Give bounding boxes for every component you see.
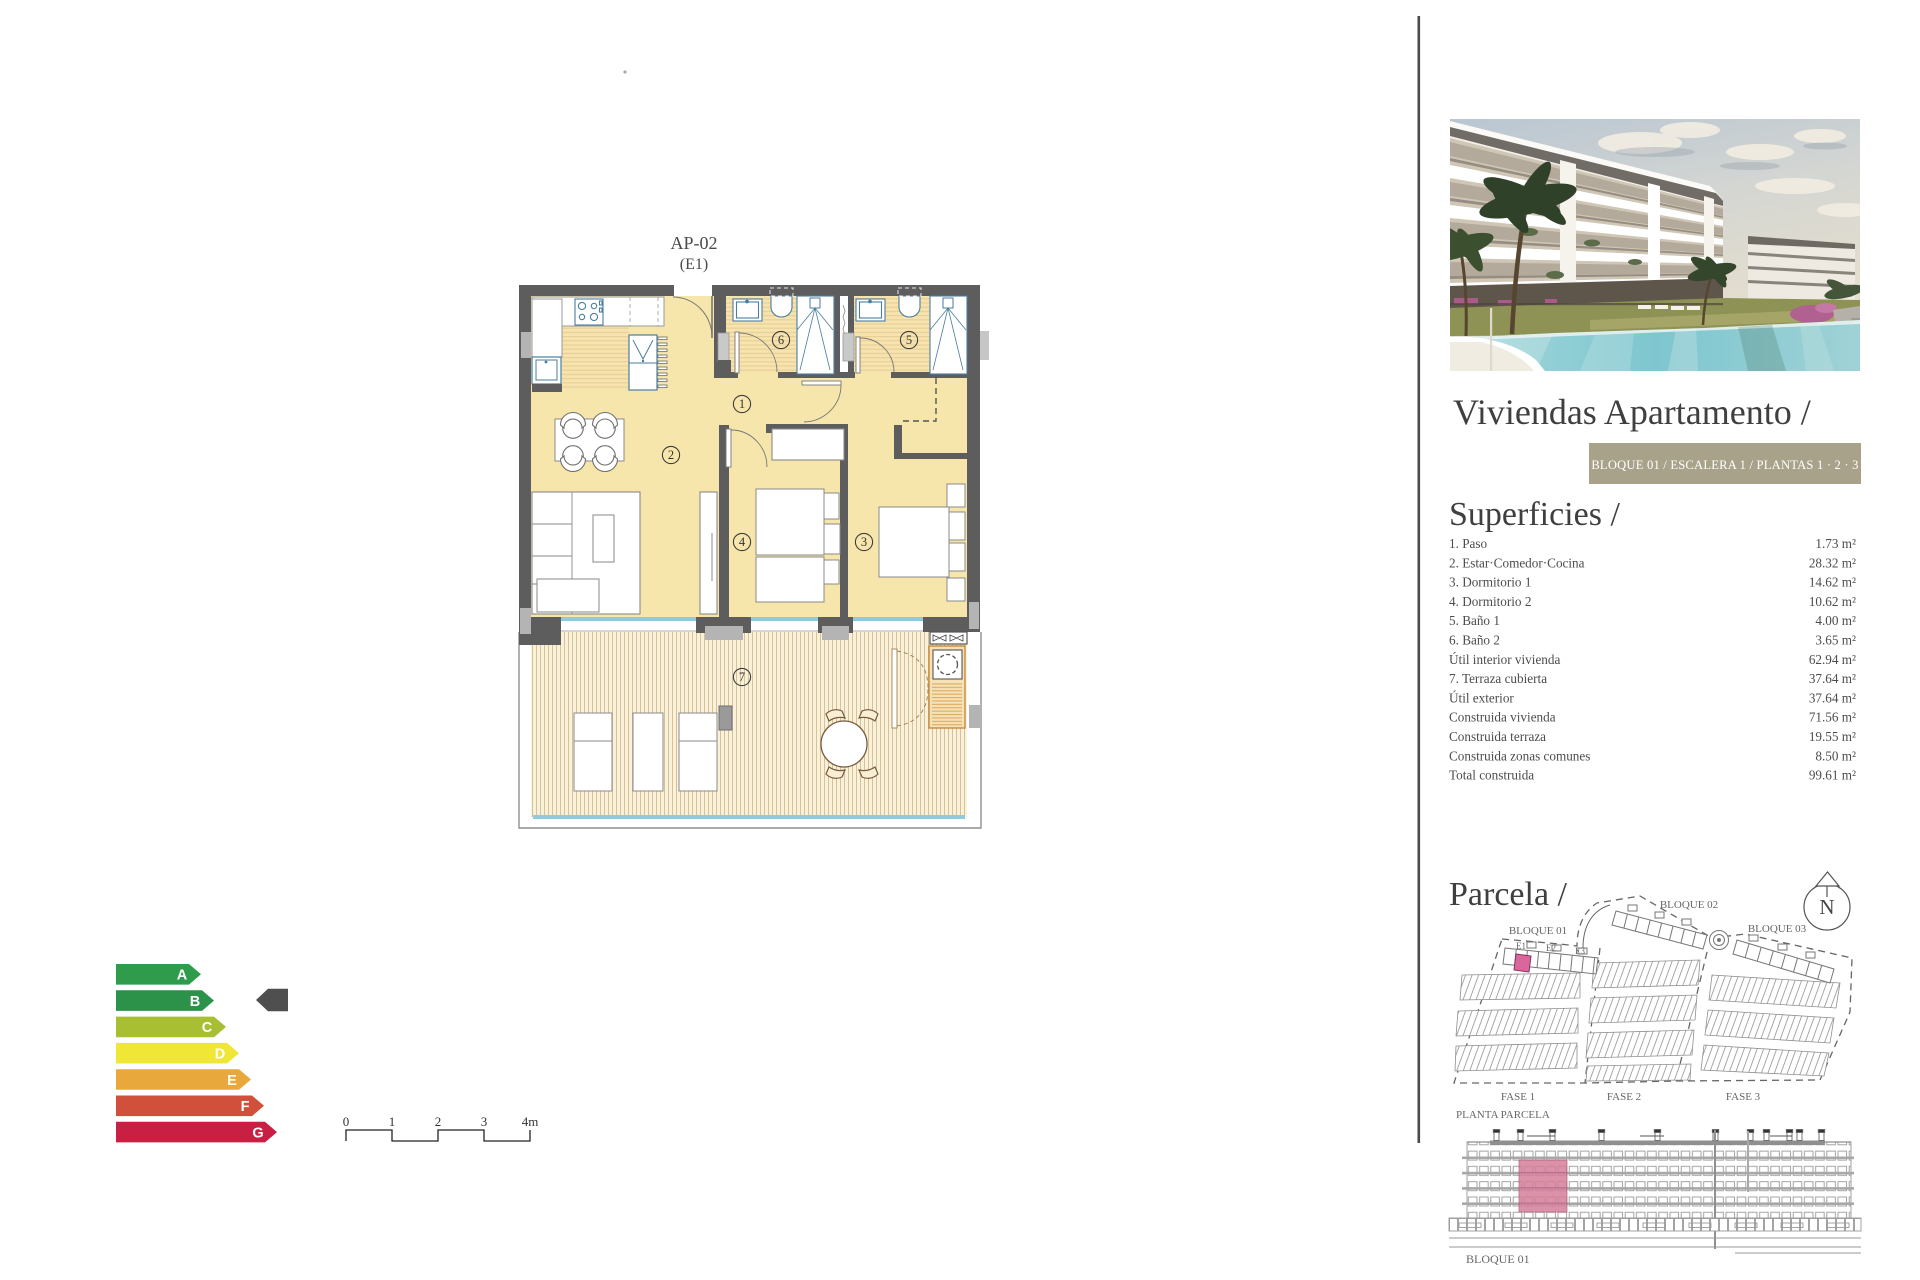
svg-text:E3: E3 [1575, 946, 1585, 956]
svg-text:Construida zonas comunes: Construida zonas comunes [1449, 748, 1590, 763]
svg-text:7. Terraza cubierta: 7. Terraza cubierta [1449, 671, 1547, 686]
svg-text:1: 1 [739, 397, 745, 411]
svg-text:2. Estar·Comedor·Cocina: 2. Estar·Comedor·Cocina [1449, 555, 1585, 570]
svg-text:2: 2 [435, 1114, 442, 1129]
svg-text:Construida vivienda: Construida vivienda [1449, 710, 1556, 725]
svg-text:Parcela /: Parcela / [1449, 876, 1568, 913]
svg-text:6: 6 [778, 333, 784, 347]
svg-text:37.64 m²: 37.64 m² [1809, 690, 1856, 705]
svg-text:Viviendas Apartamento /: Viviendas Apartamento / [1453, 392, 1811, 432]
svg-text:5. Baño 1: 5. Baño 1 [1449, 613, 1500, 628]
svg-text:2: 2 [668, 448, 674, 462]
svg-text:4.00 m²: 4.00 m² [1815, 613, 1856, 628]
svg-text:71.56 m²: 71.56 m² [1809, 710, 1856, 725]
svg-text:5: 5 [906, 333, 912, 347]
svg-text:0: 0 [343, 1114, 350, 1129]
svg-text:B: B [190, 994, 200, 1010]
svg-text:E1: E1 [1516, 941, 1526, 951]
svg-text:1: 1 [389, 1114, 396, 1129]
svg-text:Superficies /: Superficies / [1449, 496, 1620, 533]
svg-text:7: 7 [739, 670, 745, 684]
svg-text:19.55 m²: 19.55 m² [1809, 729, 1856, 744]
svg-text:4. Dormitorio 2: 4. Dormitorio 2 [1449, 594, 1531, 609]
svg-text:4m: 4m [522, 1114, 539, 1129]
svg-text:BLOQUE 01: BLOQUE 01 [1509, 925, 1567, 937]
svg-text:3: 3 [861, 535, 867, 549]
svg-text:Total construida: Total construida [1449, 768, 1534, 783]
svg-text:8.50 m²: 8.50 m² [1815, 748, 1856, 763]
svg-text:FASE 3: FASE 3 [1726, 1091, 1761, 1103]
svg-text:PLANTA PARCELA: PLANTA PARCELA [1456, 1109, 1550, 1121]
svg-text:BLOQUE 01 / ESCALERA 1 / PLANT: BLOQUE 01 / ESCALERA 1 / PLANTAS 1 · 2 ·… [1591, 458, 1858, 472]
svg-text:E: E [227, 1073, 237, 1089]
svg-text:3: 3 [481, 1114, 488, 1129]
svg-text:BLOQUE 03: BLOQUE 03 [1748, 923, 1807, 935]
svg-text:Útil interior vivienda: Útil interior vivienda [1449, 652, 1560, 667]
svg-text:N: N [1819, 895, 1834, 919]
svg-text:A: A [177, 968, 188, 984]
svg-text:4: 4 [739, 535, 746, 549]
svg-text:1.73 m²: 1.73 m² [1815, 536, 1856, 551]
svg-text:10.62 m²: 10.62 m² [1809, 594, 1856, 609]
svg-text:3. Dormitorio 1: 3. Dormitorio 1 [1449, 575, 1531, 590]
svg-text:3.65 m²: 3.65 m² [1815, 633, 1856, 648]
svg-text:AP-02: AP-02 [670, 233, 717, 253]
svg-text:FASE 1: FASE 1 [1501, 1091, 1535, 1103]
svg-text:FASE 2: FASE 2 [1607, 1091, 1641, 1103]
svg-text:37.64 m²: 37.64 m² [1809, 671, 1856, 686]
svg-text:BLOQUE 01: BLOQUE 01 [1466, 1252, 1530, 1266]
svg-text:Útil exterior: Útil exterior [1449, 690, 1514, 705]
svg-text:6. Baño 2: 6. Baño 2 [1449, 633, 1500, 648]
svg-text:C: C [202, 1020, 213, 1036]
svg-text:F: F [241, 1099, 250, 1115]
svg-text:G: G [252, 1125, 263, 1141]
svg-text:1. Paso: 1. Paso [1449, 536, 1488, 551]
svg-text:D: D [215, 1047, 225, 1063]
svg-text:99.61 m²: 99.61 m² [1809, 768, 1856, 783]
svg-text:Construida terraza: Construida terraza [1449, 729, 1546, 744]
svg-text:(E1): (E1) [680, 256, 708, 273]
svg-text:28.32 m²: 28.32 m² [1809, 555, 1856, 570]
svg-text:E2: E2 [1546, 943, 1556, 953]
svg-text:BLOQUE 02: BLOQUE 02 [1660, 899, 1718, 911]
svg-text:14.62 m²: 14.62 m² [1809, 575, 1856, 590]
svg-text:62.94 m²: 62.94 m² [1809, 652, 1856, 667]
